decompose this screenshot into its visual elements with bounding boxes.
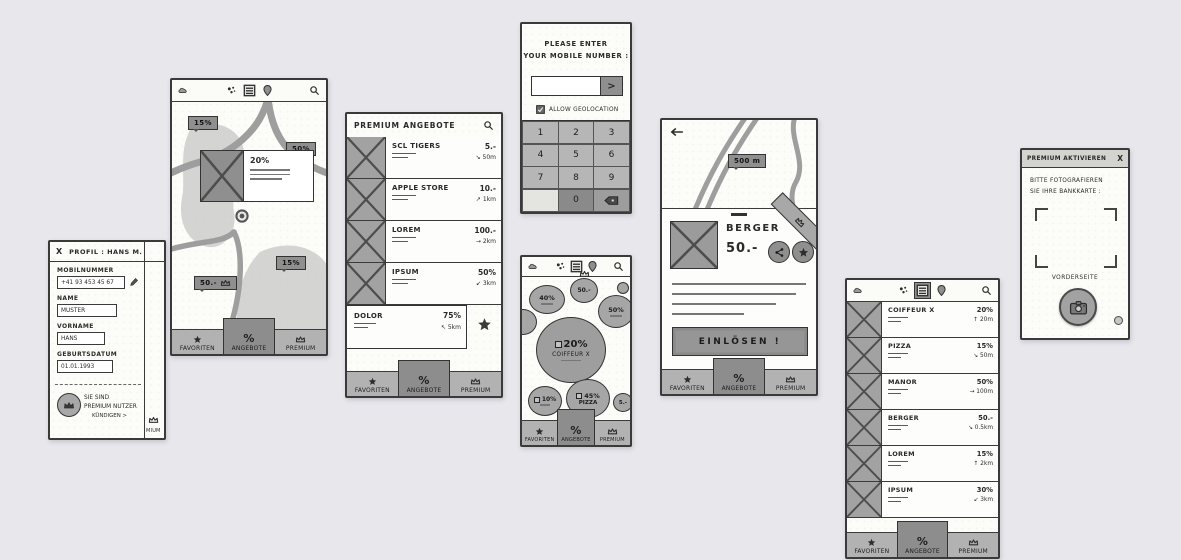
pencil-icon[interactable]	[129, 277, 139, 287]
offer-value: 20%	[977, 306, 993, 314]
bubble-value: 50.-	[577, 287, 590, 294]
instruction-text: BITTE FOTOGRAFIEREN SIE IHRE BANKKARTE :	[1030, 176, 1103, 198]
featured-offer-bubble[interactable]: 20% COIFFEUR X	[536, 317, 606, 383]
map-offer-callout[interactable]: 20%	[200, 150, 314, 202]
key-4[interactable]: 4	[523, 145, 557, 166]
field-mobilnummer: MOBILNUMMER +41 93 453 45 67	[57, 267, 139, 289]
cloud-icon[interactable]	[528, 261, 539, 272]
tab-favorites[interactable]: FAVORITEN	[172, 332, 223, 354]
offer-bubble[interactable]: 40%	[529, 285, 565, 314]
field-label: NAME	[57, 295, 117, 302]
bottom-nav: FAVORITEN % ANGEBOTE PREMIUM	[172, 329, 326, 354]
placeholder-line	[250, 178, 282, 180]
card-side-label: VORDERSEITE	[1022, 275, 1128, 281]
tab-label: FAVORITEN	[854, 548, 889, 555]
premium-offers-header: PREMIUM ANGEBOTE	[347, 114, 501, 138]
offers-list: COIFFEUR X 20% ↑ 20m PIZZA 15% ↘ 50m	[847, 302, 998, 518]
offer-price: 5.-	[485, 142, 496, 151]
map-offer-badge[interactable]: 15%	[188, 116, 218, 130]
premium-status-line1: SIE SIND	[84, 394, 137, 403]
list-item[interactable]: MANOR 50% → 100m	[847, 374, 998, 410]
bubble-value: 20%	[564, 339, 588, 350]
tab-label: PREMIUM	[600, 437, 625, 443]
offer-distance: ↘ 50m	[973, 353, 993, 359]
offer-bubble[interactable]: 5.-	[613, 393, 632, 412]
screen-offers-list: COIFFEUR X 20% ↑ 20m PIZZA 15% ↘ 50m	[845, 278, 1000, 559]
offer-title: BERGER	[726, 223, 780, 234]
key-3[interactable]: 3	[594, 122, 628, 143]
bubble-value: 50%	[608, 306, 624, 314]
tab-offers[interactable]: % ANGEBOTE	[398, 360, 451, 396]
crown-icon	[63, 401, 75, 410]
mobile-number-input[interactable]: +41 93 453 45 67	[57, 276, 125, 289]
list-item[interactable]: IPSUM 50% ↙ 3km	[347, 263, 501, 305]
premium-badge-icon	[57, 393, 81, 417]
bottom-nav: FAVORITEN % ANGEBOTE PREMIUM	[522, 420, 630, 445]
camera-viewfinder	[1035, 208, 1117, 268]
checkbox-icon[interactable]	[555, 341, 562, 348]
share-icon	[774, 247, 785, 258]
callout-value: 20%	[250, 156, 307, 165]
premium-status-line2: PREMIUM NUTZER	[84, 403, 137, 412]
crown-icon	[579, 270, 590, 278]
placeholder-line	[672, 303, 776, 305]
offer-bubble[interactable]: 50%	[598, 295, 632, 328]
bubbles-view-icon[interactable]	[555, 261, 566, 272]
bubble-value: 10%	[542, 396, 556, 403]
crown-icon	[607, 427, 618, 436]
key-5[interactable]: 5	[559, 145, 593, 166]
tab-favorites[interactable]: FAVORITEN	[347, 374, 398, 396]
star-icon	[534, 427, 545, 436]
key-6[interactable]: 6	[594, 145, 628, 166]
list-item[interactable]: COIFFEUR X 20% ↑ 20m	[847, 302, 998, 338]
bubbles-view-icon[interactable]	[226, 85, 237, 96]
cloud-icon[interactable]	[178, 85, 189, 96]
placeholder-line	[672, 293, 796, 295]
crown-icon	[968, 538, 979, 547]
distance-badge: 500 m	[728, 154, 766, 168]
tab-offers[interactable]: % ANGEBOTE	[713, 358, 766, 394]
percent-icon: %	[418, 375, 429, 386]
small-bubble[interactable]	[617, 282, 629, 294]
share-button[interactable]	[768, 241, 790, 263]
checkbox-icon[interactable]	[576, 393, 582, 399]
placeholder-line	[672, 283, 806, 285]
vorname-input[interactable]: HANS	[57, 332, 105, 345]
key-9[interactable]: 9	[594, 167, 628, 188]
crown-icon	[148, 416, 159, 424]
screen-premium-offers: PREMIUM ANGEBOTE SCL TIGERS 5.- ↘ 50m AP…	[345, 112, 503, 398]
redeem-button[interactable]: EINLÖSEN !	[672, 327, 808, 356]
offer-price: 50%	[478, 268, 496, 277]
favorite-button[interactable]	[792, 241, 814, 263]
bubbles-view-icon[interactable]	[898, 285, 909, 296]
offer-value: 50%	[977, 378, 993, 386]
list-item[interactable]: LOREM 15% ↑ 2km	[847, 446, 998, 482]
close-icon[interactable]: X	[56, 247, 62, 256]
numeric-keypad: 1 2 3 4 5 6 7 8 9 0	[522, 120, 630, 212]
divider	[55, 384, 141, 385]
instruction-line1: BITTE FOTOGRAFIEREN	[1030, 176, 1103, 187]
offer-price: 10.-	[480, 184, 496, 193]
key-empty	[523, 190, 557, 211]
instruction-line2: SIE IHRE BANKKARTE :	[1030, 187, 1103, 198]
tab-premium[interactable]: PREMIUM	[450, 374, 501, 396]
percent-icon: %	[570, 425, 581, 436]
offer-image-placeholder	[847, 410, 882, 445]
list-item[interactable]: IPSUM 30% ↙ 3km	[847, 482, 998, 518]
tab-label: FAVORITEN	[670, 385, 705, 392]
offer-image-placeholder	[847, 338, 882, 373]
backspace-key[interactable]	[594, 190, 628, 211]
cancel-subscription-link[interactable]: KÜNDIGEN >	[84, 412, 137, 420]
bubble-value: 45%	[584, 392, 600, 400]
screen-premium-activate: PREMIUM AKTIVIEREN X BITTE FOTOGRAFIEREN…	[1020, 148, 1130, 340]
list-item-premium[interactable]: BERGER 50.- ↘ 0.5km	[847, 410, 998, 446]
list-view-icon[interactable]	[915, 283, 930, 298]
bubble-name: PIZZA	[579, 400, 598, 406]
list-view-icon[interactable]	[243, 84, 256, 97]
take-photo-button[interactable]	[1059, 288, 1097, 326]
tab-label: ANGEBOTE	[232, 345, 267, 352]
tab-label: FAVORITEN	[355, 387, 390, 394]
offers-list: SCL TIGERS 5.- ↘ 50m APPLE STORE 10.- ↗ …	[347, 137, 501, 305]
wireframe-canvas: X PROFIL : HANS M. MIUM MOBILNUMMER +41 …	[0, 0, 1181, 560]
badge-value: 50.-	[200, 279, 217, 287]
activate-header: PREMIUM AKTIVIEREN X	[1022, 150, 1128, 168]
bottom-nav: FAVORITEN % ANGEBOTE PREMIUM	[847, 532, 998, 557]
percent-icon: %	[243, 333, 254, 344]
search-icon[interactable]	[483, 120, 494, 131]
tab-label: ANGEBOTE	[561, 437, 590, 443]
crown-icon	[295, 335, 306, 344]
key-1[interactable]: 1	[523, 122, 557, 143]
star-icon	[798, 247, 809, 258]
offer-distance: ↑ 20m	[973, 317, 993, 323]
bottom-nav: FAVORITEN % ANGEBOTE PREMIUM	[662, 369, 816, 394]
star-icon	[866, 538, 877, 547]
tab-label: ANGEBOTE	[905, 548, 940, 555]
partial-bubble[interactable]	[520, 309, 537, 335]
bubble-value: 5.-	[619, 400, 627, 406]
profile-title: PROFIL : HANS M.	[69, 248, 142, 256]
star-icon	[192, 335, 203, 344]
offer-image-placeholder	[847, 374, 882, 409]
offer-image-placeholder	[347, 137, 386, 178]
geburtsdatum-input[interactable]: 01.01.1993	[57, 360, 113, 373]
search-icon[interactable]	[981, 285, 992, 296]
screen-map: 15% 50% 20% 15% 50.- FAVORITEN	[170, 78, 328, 356]
offer-image-placeholder	[347, 179, 386, 220]
prompt-line2: YOUR MOBILE NUMBER :	[522, 50, 630, 62]
premium-offer-bubble[interactable]: 50.-	[570, 278, 598, 303]
backspace-icon	[604, 196, 619, 205]
tab-favorites[interactable]: FAVORITEN	[522, 423, 557, 445]
tab-label: ANGEBOTE	[722, 385, 757, 392]
tab-offers[interactable]: % ANGEBOTE	[897, 521, 949, 557]
crown-icon	[470, 377, 481, 386]
search-icon[interactable]	[613, 261, 624, 272]
star-icon	[682, 375, 693, 384]
checkbox-checked-icon[interactable]	[536, 105, 545, 114]
map-view-icon[interactable]	[262, 85, 273, 96]
tab-label: PREMIUM	[286, 345, 316, 352]
offer-image-placeholder	[847, 446, 882, 481]
offer-value: 15%	[977, 342, 993, 350]
percent-icon: %	[733, 373, 744, 384]
favorite-star-icon[interactable]	[477, 317, 492, 332]
offer-distance: → 100m	[970, 389, 993, 395]
percent-icon: %	[917, 536, 928, 547]
offer-price: 100.-	[474, 226, 496, 235]
offer-distance: ↑ 2km	[974, 461, 993, 467]
tab-premium[interactable]: PREMIUM	[948, 535, 998, 557]
field-name: NAME MUSTER	[57, 295, 117, 317]
bubble-value: 40%	[539, 294, 555, 302]
underlying-screen-sliver: MIUM	[144, 242, 165, 438]
tab-label: PREMIUM	[461, 387, 491, 394]
offer-name: SCL TIGERS	[392, 142, 496, 150]
list-item[interactable]: LOREM 100.- → 2km	[347, 221, 501, 263]
tab-premium[interactable]: PREMIUM	[275, 332, 326, 354]
offer-image-placeholder	[347, 263, 386, 304]
field-label: VORNAME	[57, 323, 105, 330]
bubbles-topbar	[522, 257, 630, 277]
placeholder-line	[672, 313, 744, 315]
offer-price: 50.-	[726, 241, 758, 256]
cloud-icon[interactable]	[853, 285, 864, 296]
offer-image-placeholder	[347, 221, 386, 262]
offer-distance: ↖ 5km	[441, 324, 461, 331]
screen-bubbles: 40% 50.- 50% 20% COIFFEUR X 10% 45% PIZZ	[520, 255, 632, 447]
list-item-swiped[interactable]: DOLOR 75% ↖ 5km	[345, 305, 467, 349]
list-item[interactable]: SCL TIGERS 5.- ↘ 50m	[347, 137, 501, 179]
geolocation-row: ALLOW GEOLOCATION	[536, 105, 618, 114]
tab-premium[interactable]: PREMIUM	[595, 423, 630, 445]
offer-distance: ↗ 1km	[476, 196, 496, 203]
bubble-name: COIFFEUR X	[552, 352, 590, 358]
crown-icon	[220, 279, 231, 287]
checkbox-icon[interactable]	[534, 397, 540, 403]
key-7[interactable]: 7	[523, 167, 557, 188]
tab-label: FAVORITEN	[180, 345, 215, 352]
screen-mobile-number: PLEASE ENTER YOUR MOBILE NUMBER : > ALLO…	[520, 22, 632, 214]
crown-icon	[785, 375, 796, 384]
name-input[interactable]: MUSTER	[57, 304, 117, 317]
page-title: PREMIUM ANGEBOTE	[354, 121, 455, 130]
submit-button[interactable]: >	[601, 76, 623, 96]
screen-offer-detail: 500 m BERGER 50.- EINLÖSEN ! FAVORIT	[660, 118, 818, 396]
current-location-icon	[234, 208, 250, 224]
tab-premium[interactable]: PREMIUM	[765, 372, 816, 394]
tab-offers[interactable]: % ANGEBOTE	[223, 318, 276, 354]
offer-image-placeholder	[670, 221, 718, 269]
field-label: GEBURTSDATUM	[57, 351, 117, 358]
premium-status: SIE SIND PREMIUM NUTZER KÜNDIGEN >	[84, 394, 137, 420]
field-vorname: VORNAME HANS	[57, 323, 105, 345]
tab-offers[interactable]: % ANGEBOTE	[557, 409, 594, 445]
star-icon	[367, 377, 378, 386]
placeholder-line	[250, 174, 290, 176]
partial-premium-tab-label[interactable]: MIUM	[146, 428, 161, 434]
offer-image-placeholder	[847, 482, 882, 517]
screen-profile: X PROFIL : HANS M. MIUM MOBILNUMMER +41 …	[48, 240, 166, 440]
tab-favorites[interactable]: FAVORITEN	[847, 535, 897, 557]
offer-value: 30%	[977, 486, 993, 494]
crown-icon	[793, 215, 806, 228]
list-item[interactable]: PIZZA 15% ↘ 50m	[847, 338, 998, 374]
offer-value: 15%	[977, 450, 993, 458]
map-offer-badge[interactable]: 15%	[276, 256, 306, 270]
offer-distance: ↘ 0.5km	[968, 425, 993, 431]
mobile-number-input[interactable]	[531, 76, 601, 96]
offer-distance: ↙ 3km	[974, 497, 993, 503]
offer-distance: → 2km	[476, 238, 496, 245]
geolocation-label: ALLOW GEOLOCATION	[549, 107, 618, 113]
camera-icon	[1069, 300, 1088, 315]
list-topbar	[847, 280, 998, 302]
search-icon[interactable]	[309, 85, 320, 96]
map-topbar	[172, 80, 326, 102]
prompt-line1: PLEASE ENTER	[522, 38, 630, 50]
drag-handle[interactable]	[731, 213, 747, 216]
page-title: PREMIUM AKTIVIEREN	[1027, 156, 1106, 162]
prompt-text: PLEASE ENTER YOUR MOBILE NUMBER :	[522, 38, 630, 62]
tab-label: PREMIUM	[958, 548, 988, 555]
list-item[interactable]: APPLE STORE 10.- ↗ 1km	[347, 179, 501, 221]
offer-value: 50.-	[978, 414, 993, 422]
offer-image-placeholder	[201, 151, 244, 201]
tab-label: ANGEBOTE	[407, 387, 442, 394]
key-0[interactable]: 0	[559, 190, 593, 211]
map-view-icon[interactable]	[936, 285, 947, 296]
field-geburtsdatum: GEBURTSDATUM 01.01.1993	[57, 351, 117, 373]
tab-label: FAVORITEN	[525, 437, 555, 443]
key-2[interactable]: 2	[559, 122, 593, 143]
number-entry-row: >	[531, 76, 623, 96]
offer-image-placeholder	[847, 302, 882, 337]
close-icon[interactable]: X	[1117, 154, 1123, 163]
bottom-nav: FAVORITEN % ANGEBOTE PREMIUM	[347, 371, 501, 396]
offer-distance: ↙ 3km	[476, 280, 496, 287]
tab-label: PREMIUM	[776, 385, 806, 392]
placeholder-line	[250, 169, 290, 171]
offer-distance: ↘ 50m	[476, 154, 496, 161]
field-label: MOBILNUMMER	[57, 267, 139, 274]
map-premium-offer-badge[interactable]: 50.-	[194, 276, 237, 290]
key-8[interactable]: 8	[559, 167, 593, 188]
flash-toggle-icon[interactable]	[1114, 316, 1123, 325]
back-icon[interactable]	[670, 127, 684, 137]
offer-price: 75%	[443, 311, 461, 320]
tab-favorites[interactable]: FAVORITEN	[662, 372, 713, 394]
